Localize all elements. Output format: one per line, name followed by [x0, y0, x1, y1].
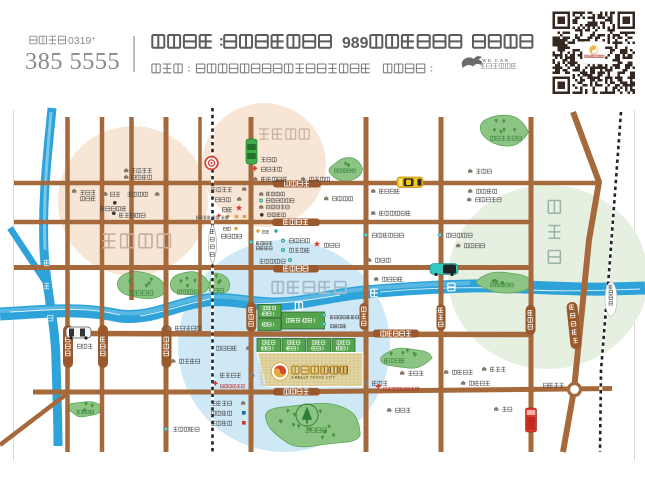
svg-text:0319+: 0319+ — [68, 35, 95, 47]
svg-text:385 5555: 385 5555 — [25, 48, 120, 75]
svg-text:WE CAN: WE CAN — [482, 58, 509, 63]
svg-text:J-KELLY TRADE CITY: J-KELLY TRADE CITY — [291, 376, 336, 380]
svg-text:989: 989 — [342, 35, 369, 52]
